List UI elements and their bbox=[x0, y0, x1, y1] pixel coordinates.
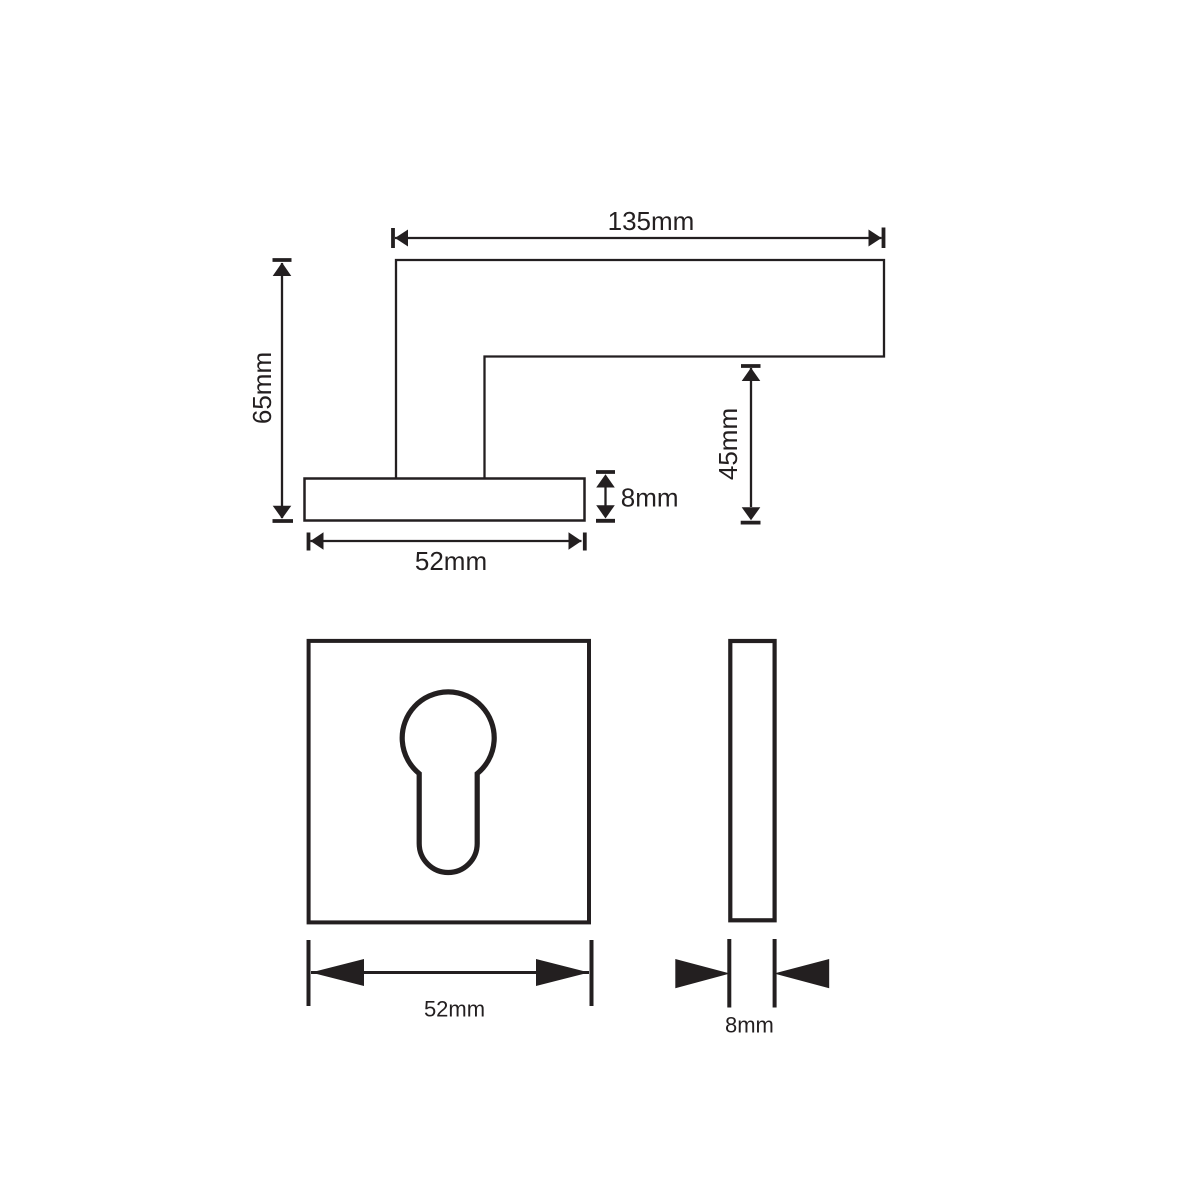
svg-text:135mm: 135mm bbox=[608, 206, 695, 236]
svg-text:8mm: 8mm bbox=[621, 483, 679, 513]
svg-text:8mm: 8mm bbox=[725, 1013, 774, 1038]
svg-text:45mm: 45mm bbox=[713, 408, 743, 480]
svg-text:52mm: 52mm bbox=[415, 546, 487, 576]
svg-text:52mm: 52mm bbox=[424, 997, 485, 1022]
svg-text:65mm: 65mm bbox=[247, 352, 277, 424]
